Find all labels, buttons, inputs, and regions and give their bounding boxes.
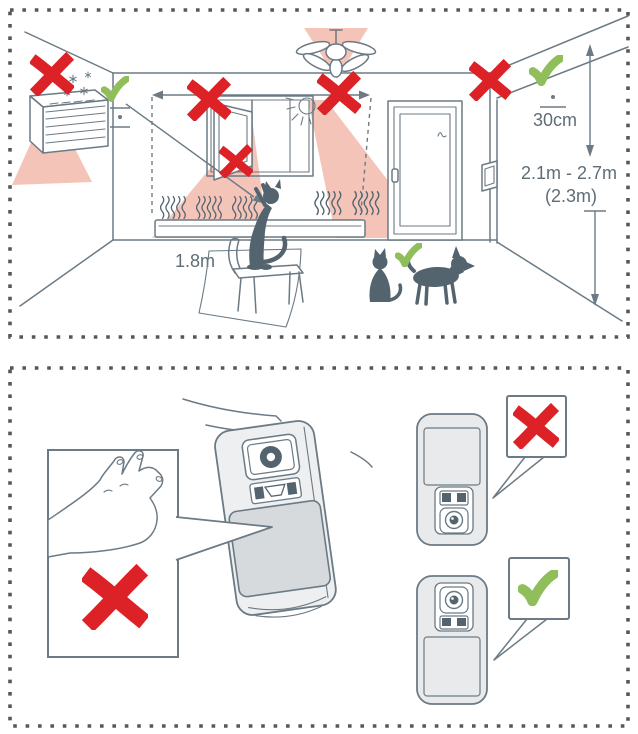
speech-bubble-wrong [493, 396, 566, 498]
height-recommended-label: (2.3m) [545, 186, 597, 206]
clearance-label: 30cm [533, 110, 577, 130]
height-range-label: 2.1m - 2.7m [521, 163, 617, 183]
check-icon-left-corner [104, 79, 127, 98]
pir-lens-window [228, 500, 331, 598]
sensor-upright [417, 576, 487, 704]
light-switch [482, 161, 497, 191]
x-mark-icon-ac [37, 60, 68, 90]
air-conditioner [30, 90, 108, 153]
device-handling-panel [10, 368, 628, 726]
motion-sensor-device [213, 419, 339, 623]
check-icon-right-wall [533, 58, 560, 82]
door-handle [392, 169, 398, 182]
door [388, 101, 462, 240]
height-measure-arrow-bottom [584, 211, 606, 306]
ceiling-fan [295, 30, 376, 77]
x-mark-icon-window-right [324, 79, 355, 109]
sensor-mark-right [540, 95, 566, 107]
room-placement-panel: 30cm 2.1m - 2.7m (2.3m) 1.8m [10, 10, 628, 337]
speech-bubble-correct [494, 558, 569, 660]
sensor-upside-down [417, 414, 487, 545]
camera-module [241, 433, 300, 480]
walking-dog [408, 246, 475, 304]
installation-guide: 30cm 2.1m - 2.7m (2.3m) 1.8m [0, 0, 638, 734]
check-icon-pets [398, 245, 420, 264]
